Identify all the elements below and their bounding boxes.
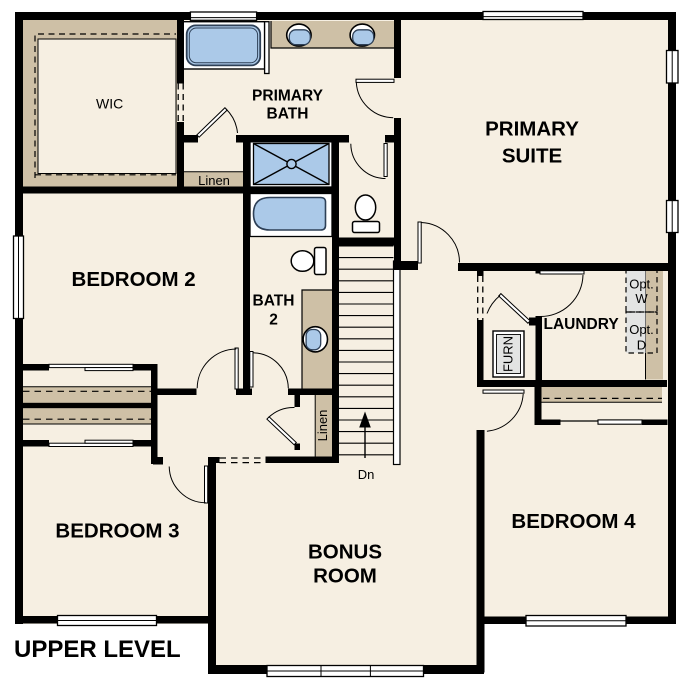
svg-text:PRIMARY: PRIMARY	[485, 118, 579, 141]
svg-text:SUITE: SUITE	[502, 145, 562, 168]
svg-text:Linen: Linen	[315, 410, 330, 442]
svg-text:Opt.: Opt.	[629, 277, 654, 292]
svg-text:BATH: BATH	[253, 293, 295, 310]
svg-text:LAUNDRY: LAUNDRY	[544, 316, 620, 333]
svg-text:UPPER LEVEL: UPPER LEVEL	[14, 636, 181, 663]
svg-text:FURN: FURN	[501, 336, 516, 372]
svg-text:Dn: Dn	[358, 467, 375, 482]
svg-text:W: W	[635, 291, 648, 306]
svg-text:PRIMARY: PRIMARY	[252, 88, 324, 105]
svg-text:BEDROOM 2: BEDROOM 2	[72, 268, 196, 291]
svg-text:BEDROOM 4: BEDROOM 4	[511, 510, 636, 533]
svg-text:BATH: BATH	[267, 106, 309, 123]
svg-text:BEDROOM 3: BEDROOM 3	[55, 520, 179, 543]
svg-text:BONUS: BONUS	[308, 541, 382, 564]
svg-text:Opt.: Opt.	[629, 322, 654, 337]
svg-text:ROOM: ROOM	[313, 565, 377, 588]
svg-text:Linen: Linen	[198, 173, 230, 188]
svg-text:D: D	[637, 338, 646, 353]
svg-text:2: 2	[269, 312, 278, 329]
svg-text:WIC: WIC	[96, 96, 123, 112]
